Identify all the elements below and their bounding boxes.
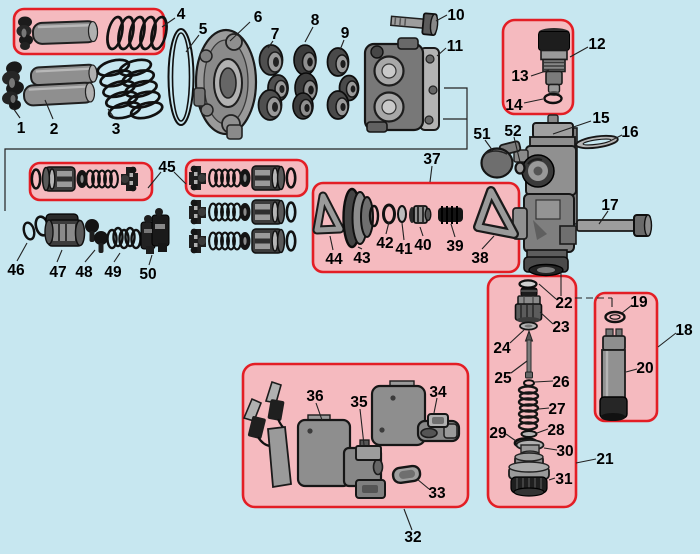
svg-text:27: 27: [548, 401, 565, 418]
svg-text:7: 7: [271, 26, 280, 43]
svg-text:10: 10: [447, 7, 464, 24]
svg-text:29: 29: [489, 425, 507, 442]
svg-text:20: 20: [636, 360, 653, 377]
svg-text:24: 24: [493, 340, 511, 357]
svg-text:50: 50: [139, 266, 156, 283]
svg-text:5: 5: [199, 21, 208, 38]
svg-text:41: 41: [395, 241, 413, 258]
svg-text:39: 39: [446, 238, 464, 255]
svg-text:31: 31: [555, 471, 573, 488]
svg-text:3: 3: [112, 121, 121, 138]
svg-text:34: 34: [429, 384, 447, 401]
svg-text:18: 18: [675, 322, 693, 339]
svg-text:46: 46: [7, 262, 25, 279]
svg-text:1: 1: [17, 120, 26, 137]
svg-text:38: 38: [471, 250, 489, 267]
svg-text:14: 14: [505, 97, 523, 114]
svg-text:30: 30: [556, 443, 573, 460]
svg-text:40: 40: [414, 237, 431, 254]
svg-text:36: 36: [306, 388, 324, 405]
svg-text:49: 49: [104, 264, 122, 281]
svg-text:33: 33: [428, 485, 446, 502]
svg-text:44: 44: [325, 251, 343, 268]
svg-text:37: 37: [423, 151, 440, 168]
svg-text:51: 51: [473, 126, 491, 143]
svg-text:47: 47: [49, 264, 66, 281]
svg-text:22: 22: [555, 295, 572, 312]
svg-text:16: 16: [621, 124, 639, 141]
svg-text:42: 42: [376, 235, 393, 252]
svg-text:4: 4: [177, 6, 186, 23]
svg-text:15: 15: [592, 110, 610, 127]
svg-text:43: 43: [353, 250, 371, 267]
svg-text:52: 52: [504, 123, 521, 140]
svg-text:35: 35: [350, 394, 368, 411]
svg-text:45: 45: [158, 159, 176, 176]
svg-text:12: 12: [588, 36, 605, 53]
svg-text:2: 2: [50, 121, 59, 138]
svg-text:13: 13: [511, 68, 529, 85]
svg-text:19: 19: [630, 294, 648, 311]
svg-text:23: 23: [552, 319, 570, 336]
svg-text:28: 28: [547, 422, 565, 439]
svg-text:17: 17: [601, 197, 618, 214]
svg-text:9: 9: [341, 25, 350, 42]
svg-text:32: 32: [404, 529, 421, 546]
svg-text:11: 11: [447, 38, 464, 55]
svg-text:25: 25: [494, 370, 512, 387]
svg-text:8: 8: [311, 12, 320, 29]
svg-text:26: 26: [552, 374, 570, 391]
svg-text:21: 21: [596, 451, 614, 468]
svg-text:6: 6: [254, 9, 263, 26]
svg-text:48: 48: [75, 264, 93, 281]
